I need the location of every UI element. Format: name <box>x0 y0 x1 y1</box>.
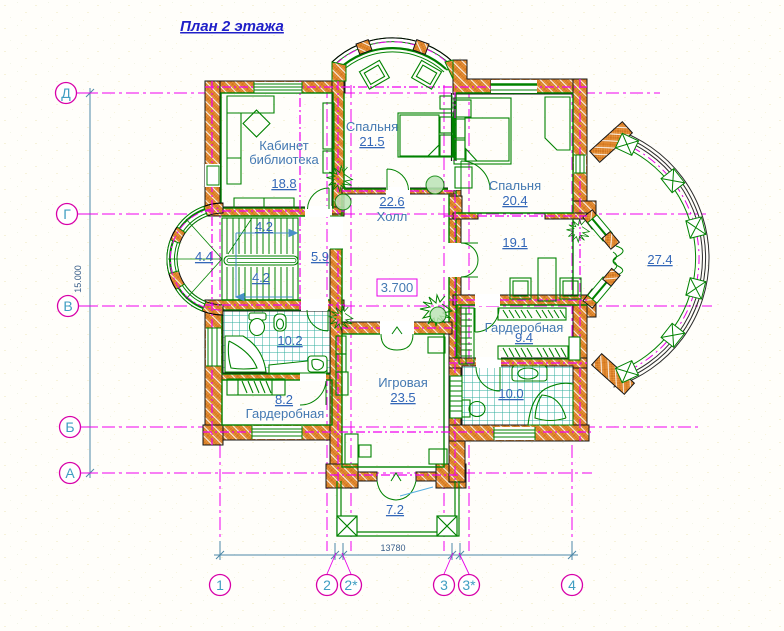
svg-text:15.000: 15.000 <box>73 265 83 293</box>
svg-text:18.8: 18.8 <box>271 176 296 191</box>
svg-text:Б: Б <box>65 419 74 435</box>
svg-text:4.2: 4.2 <box>255 219 273 234</box>
svg-text:3.700: 3.700 <box>381 280 414 295</box>
svg-text:В: В <box>63 298 72 314</box>
svg-text:Г: Г <box>63 206 71 222</box>
svg-text:10.2: 10.2 <box>277 333 302 348</box>
svg-text:7.2: 7.2 <box>386 502 404 517</box>
svg-text:22.6: 22.6 <box>379 194 404 209</box>
svg-text:Кабинет: Кабинет <box>259 138 308 153</box>
svg-text:20.4: 20.4 <box>502 193 527 208</box>
svg-text:3*: 3* <box>462 577 476 593</box>
svg-text:Спальня: Спальня <box>489 178 541 193</box>
svg-text:10.0: 10.0 <box>498 386 523 401</box>
svg-text:Д: Д <box>61 85 71 101</box>
svg-text:19.1: 19.1 <box>502 235 527 250</box>
svg-text:2: 2 <box>323 577 331 593</box>
svg-text:1: 1 <box>216 577 224 593</box>
svg-text:5.9: 5.9 <box>311 249 329 264</box>
svg-text:23.5: 23.5 <box>390 390 415 405</box>
svg-text:4: 4 <box>568 577 576 593</box>
svg-text:4.2: 4.2 <box>252 270 270 285</box>
svg-text:А: А <box>65 465 75 481</box>
svg-text:9.4: 9.4 <box>515 330 533 345</box>
svg-text:4.4: 4.4 <box>195 249 213 264</box>
svg-text:8.2: 8.2 <box>275 392 293 407</box>
svg-text:библиотека: библиотека <box>249 152 319 167</box>
svg-text:Спальня: Спальня <box>346 119 398 134</box>
svg-text:План 2 этажа: План 2 этажа <box>180 18 284 35</box>
svg-text:21.5: 21.5 <box>359 134 384 149</box>
svg-text:3: 3 <box>440 577 448 593</box>
svg-text:2*: 2* <box>344 577 358 593</box>
svg-text:27.4: 27.4 <box>647 252 672 267</box>
svg-text:Холл: Холл <box>377 209 408 224</box>
svg-text:Гардеробная: Гардеробная <box>246 406 325 421</box>
svg-text:Игровая: Игровая <box>378 375 428 390</box>
svg-text:13780: 13780 <box>380 543 405 553</box>
